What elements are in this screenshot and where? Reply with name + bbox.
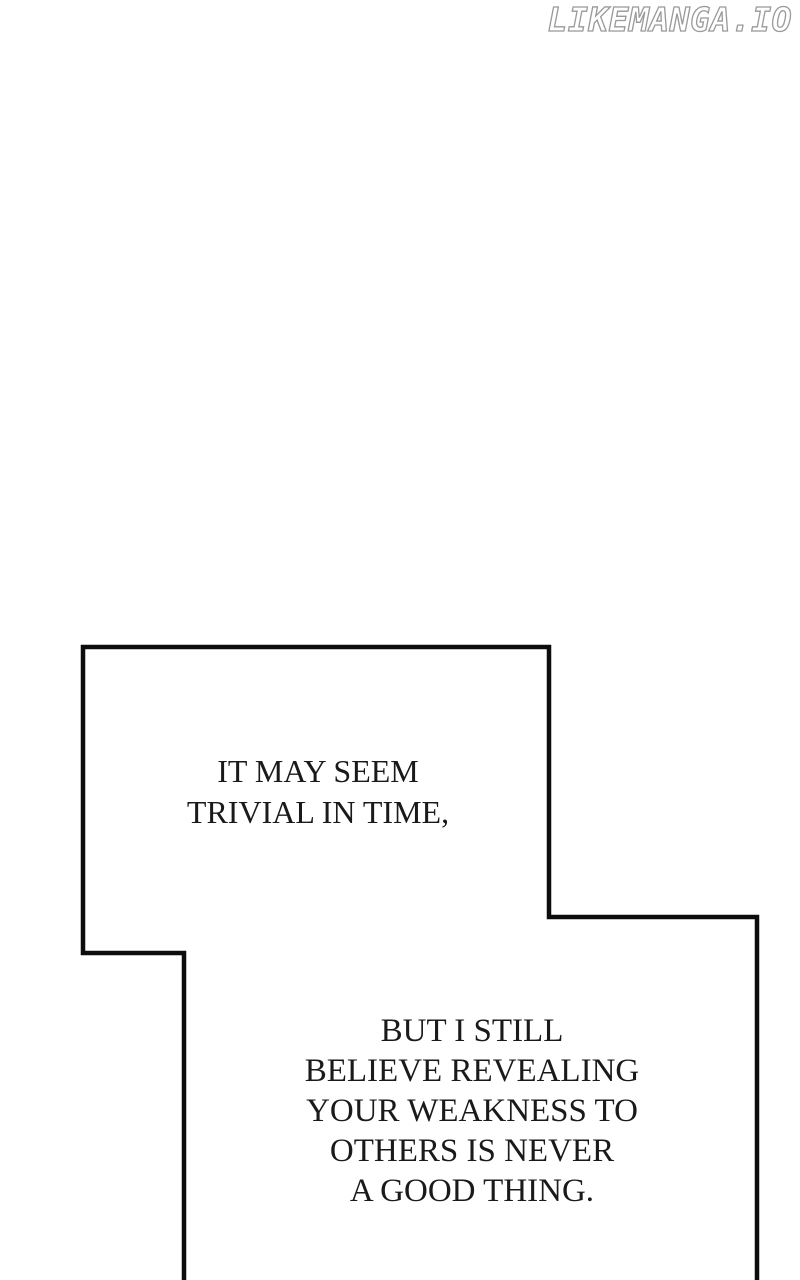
- dialogue-text-lower: BUT I STILL BELIEVE REVEALING YOUR WEAKN…: [262, 1011, 682, 1211]
- manga-page: LIKEMANGA.IO IT MAY SEEM TRIVIAL IN TIME…: [0, 0, 800, 1280]
- dialogue-text-upper: IT MAY SEEM TRIVIAL IN TIME,: [118, 751, 518, 833]
